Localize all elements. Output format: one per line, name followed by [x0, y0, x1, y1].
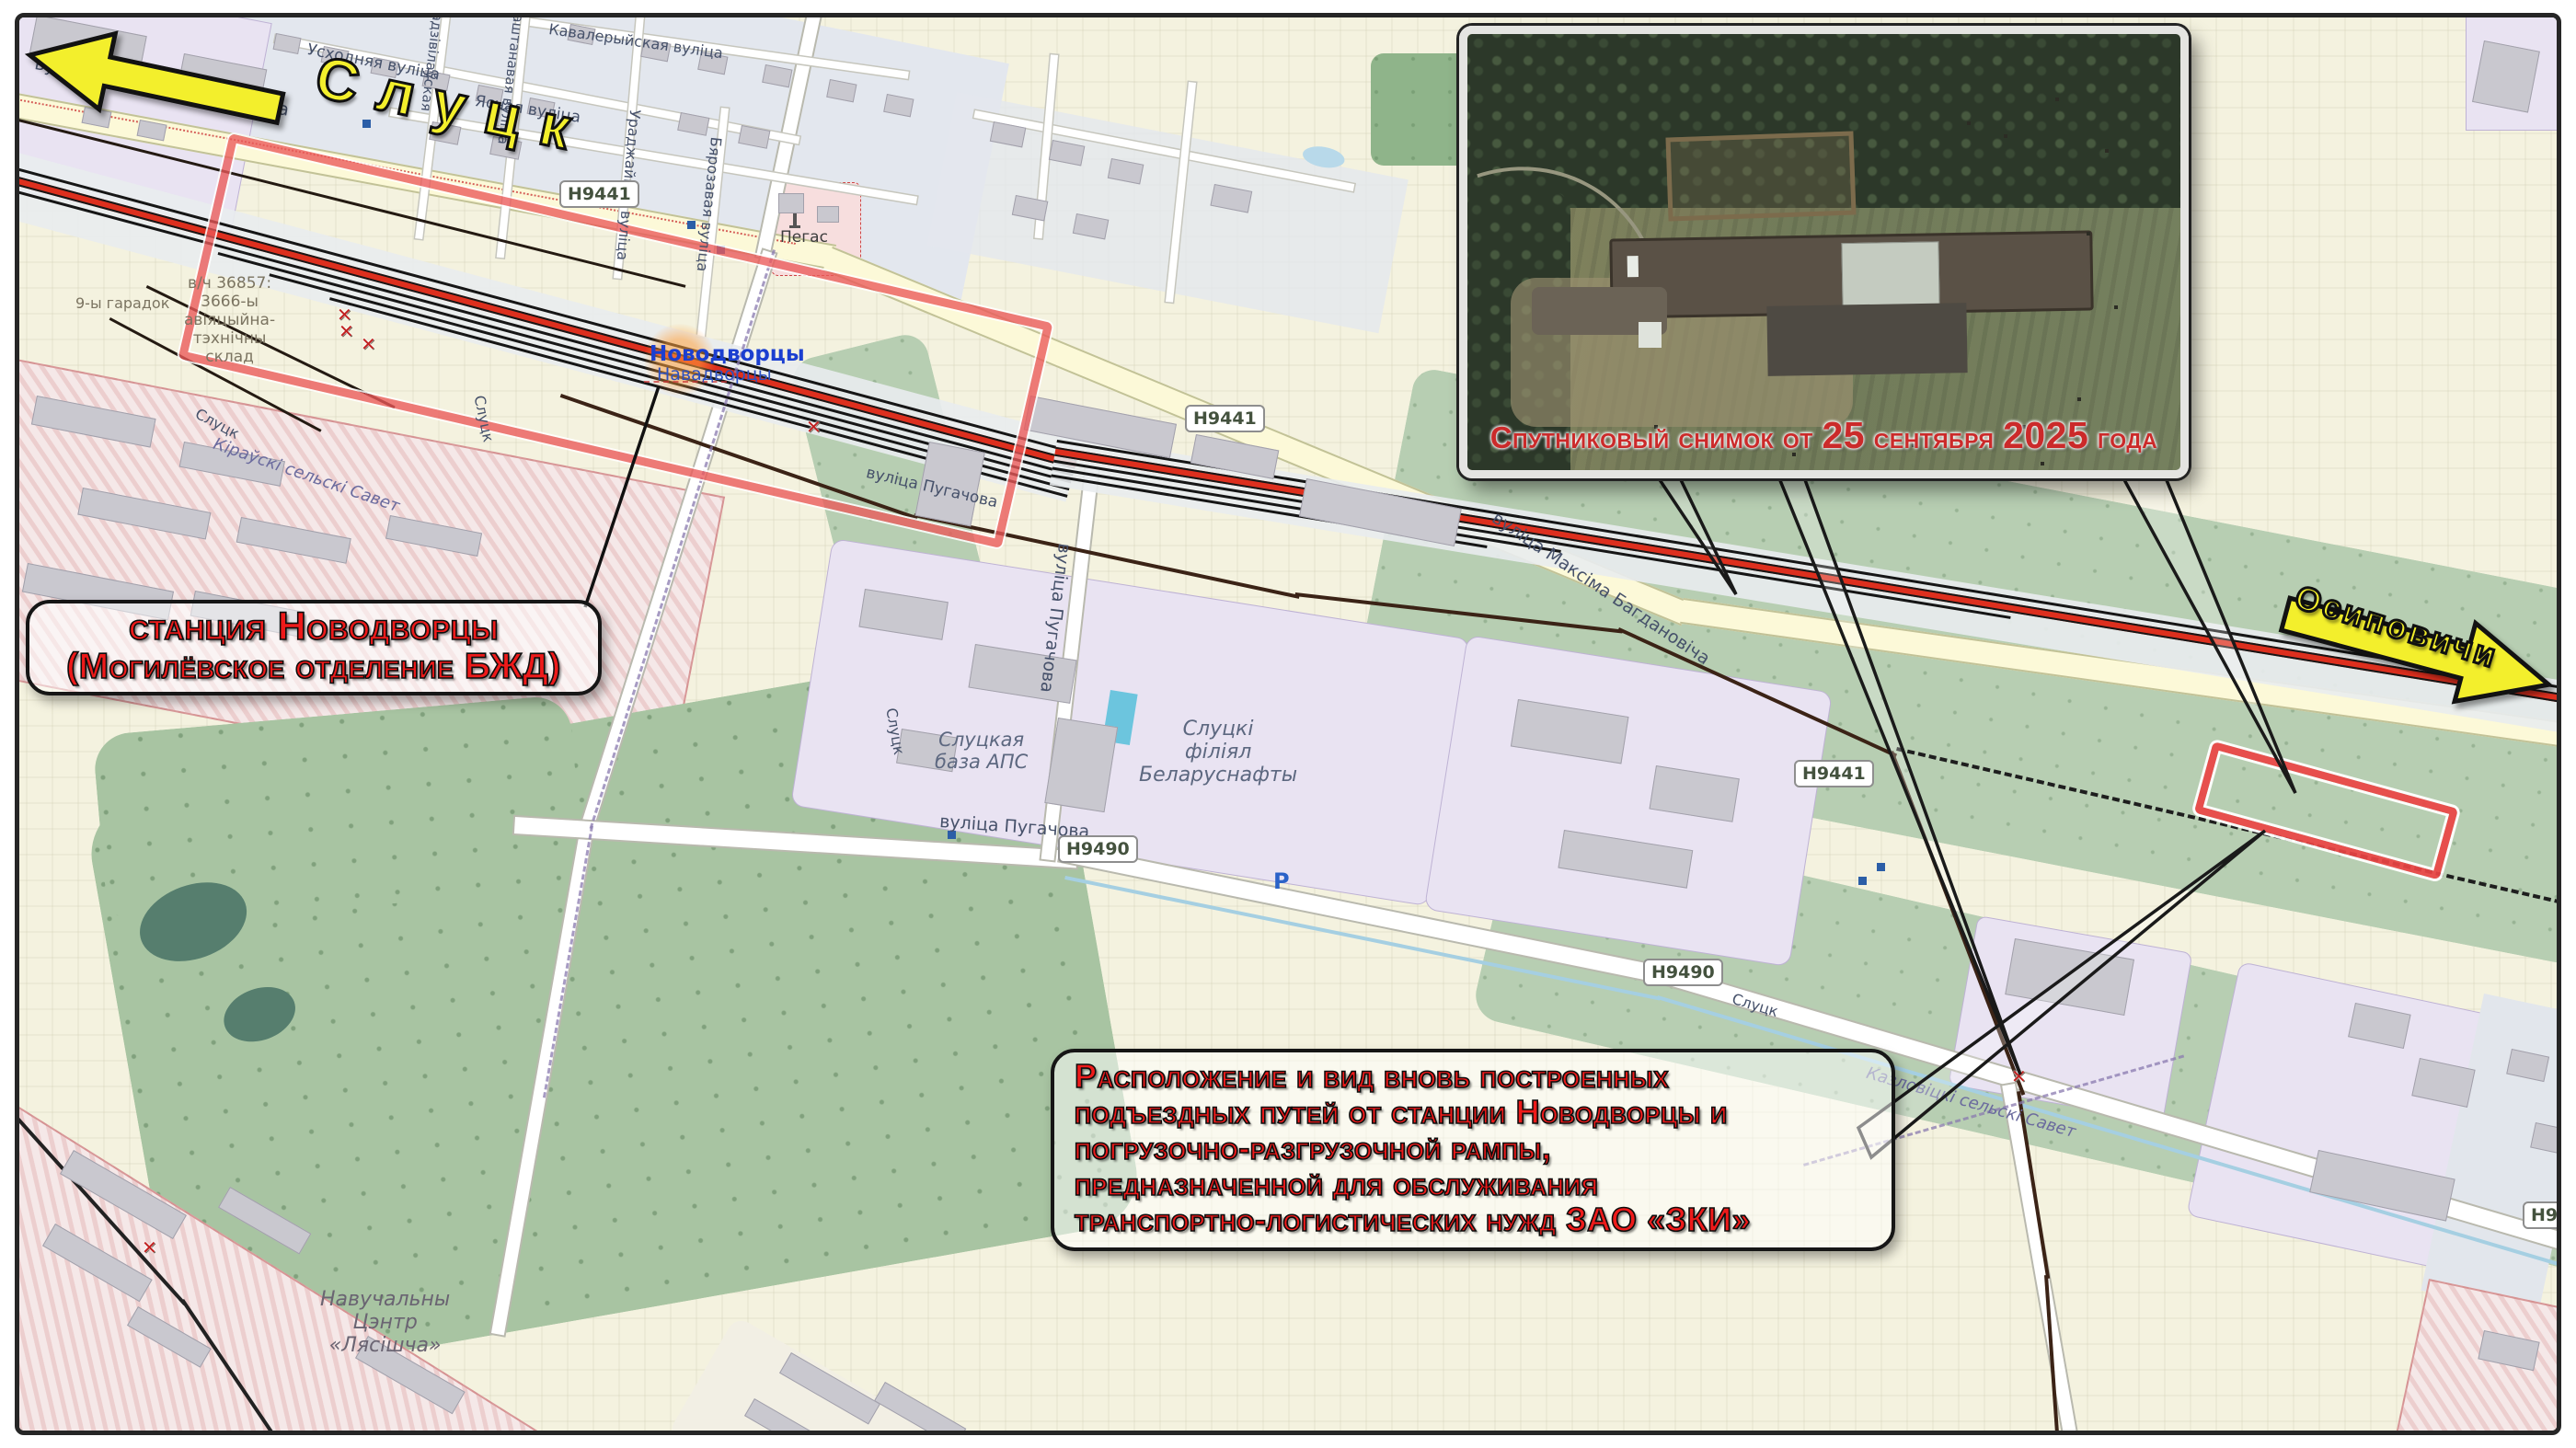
- road-shield-h9490: H9490: [2523, 1201, 2561, 1229]
- infographic-canvas: ✕ ✕ ✕ ✕ ✕ ✕ P вуліца Максіма Багдановіча…: [0, 0, 2576, 1448]
- parking-icon: P: [1273, 868, 1290, 894]
- description-line: Расположение и вид вновь построенных: [1075, 1058, 1892, 1094]
- building: [2472, 40, 2540, 113]
- bus-stop-icon: [1877, 863, 1885, 871]
- area-label-line: Навучальны: [320, 1288, 450, 1311]
- arrow-slutsk-shape: [22, 28, 288, 146]
- caption-day: 25: [1822, 414, 1865, 456]
- military-unit-label: в/ч 36857: 3666-ы авіяцыйна- тэхнічны ск…: [184, 274, 275, 366]
- industrial-zone-belarusnafta: [1424, 635, 1833, 967]
- rail-crossing-icon: ✕: [142, 1236, 157, 1258]
- satellite-small-building: [1639, 322, 1662, 348]
- military-unit-line: тэхнічны: [184, 329, 275, 348]
- rail-crossing-icon: ✕: [2011, 1065, 2027, 1087]
- area-label-line: Беларуснафты: [1139, 764, 1297, 787]
- area-label-line: Цэнтр: [320, 1311, 450, 1334]
- satellite-caption: Спутниковый снимок от 25 сентября 2025 г…: [1467, 414, 2180, 457]
- caption-month: сентября: [1874, 420, 1995, 454]
- area-label-line: база АПС: [935, 751, 1028, 773]
- satellite-image: Спутниковый снимок от 25 сентября 2025 г…: [1467, 34, 2180, 470]
- area-label-line: Слуцкі: [1139, 718, 1297, 741]
- military-unit-line: авіяцыйна-: [184, 311, 275, 329]
- military-unit-line: склад: [184, 348, 275, 366]
- road-shield-h9490: H9490: [1643, 959, 1723, 986]
- area-label-line: «Лясішча»: [320, 1334, 450, 1357]
- area-label-line: філіял: [1139, 741, 1297, 764]
- road-shield-h9441: H9441: [559, 180, 639, 208]
- military-unit-line: в/ч 36857:: [184, 274, 275, 293]
- bus-stop-icon: [1858, 877, 1867, 885]
- road-shield-h9490: H9490: [1058, 835, 1138, 863]
- station-name-ru: Новодворцы: [650, 342, 805, 366]
- satellite-excavation: [1665, 131, 1856, 221]
- satellite-white-dot: [1627, 256, 1639, 277]
- area-label-training-centre: Навучальны Цэнтр «Лясішча»: [320, 1288, 450, 1357]
- caption-suffix: года: [2098, 420, 2157, 454]
- road-shield-h9441: H9441: [1185, 405, 1265, 432]
- monument-icon: [793, 213, 797, 226]
- station-callout-line2: (Могилёвское отделение БЖД): [29, 648, 598, 686]
- station-name-be: Навадворцы: [657, 364, 772, 385]
- description-callout-box: Расположение и вид вновь построенных под…: [1051, 1049, 1895, 1251]
- arrow-slutsk: [15, 28, 289, 147]
- caption-prefix: Спутниковый снимок от: [1490, 420, 1813, 454]
- description-line: предназначенной для обслуживания: [1075, 1166, 1892, 1201]
- satellite-warehouse: [1842, 242, 1940, 308]
- road-shield-h9441: H9441: [1794, 760, 1874, 787]
- garadok-label: 9-ы гарадок: [75, 294, 169, 312]
- map-canvas: ✕ ✕ ✕ ✕ ✕ ✕ P вуліца Максіма Багдановіча…: [15, 13, 2561, 1435]
- bus-stop-icon: [687, 221, 696, 229]
- satellite-apron: [1766, 303, 1967, 376]
- satellite-bales: [1967, 121, 1971, 125]
- station-callout-box: станция Новодворцы (Могилёвское отделени…: [26, 600, 602, 695]
- building: [778, 193, 804, 213]
- description-line: транспортно-логистических нужд ЗАО «ЗКИ»: [1075, 1201, 1892, 1237]
- satellite-inset: Спутниковый снимок от 25 сентября 2025 г…: [1459, 26, 2189, 478]
- clearing: [667, 1316, 1006, 1435]
- description-line: подъездных путей от станции Новодворцы и: [1075, 1094, 1892, 1130]
- area-label-belarusnafta: Слуцкі філіял Беларуснафты: [1139, 718, 1297, 787]
- pegas-label: Пегас: [780, 228, 828, 247]
- military-unit-line: 3666-ы: [184, 293, 275, 311]
- station-callout-line1: станция Новодворцы: [29, 605, 598, 648]
- building: [817, 206, 839, 223]
- description-line: погрузочно-разгрузочной рампы,: [1075, 1130, 1892, 1166]
- caption-year: 2025: [2003, 414, 2088, 456]
- area-label-line: Слуцкая: [935, 729, 1028, 751]
- map-frame: ✕ ✕ ✕ ✕ ✕ ✕ P вуліца Максіма Багдановіча…: [15, 13, 2561, 1435]
- area-label-aps: Слуцкая база АПС: [935, 729, 1028, 773]
